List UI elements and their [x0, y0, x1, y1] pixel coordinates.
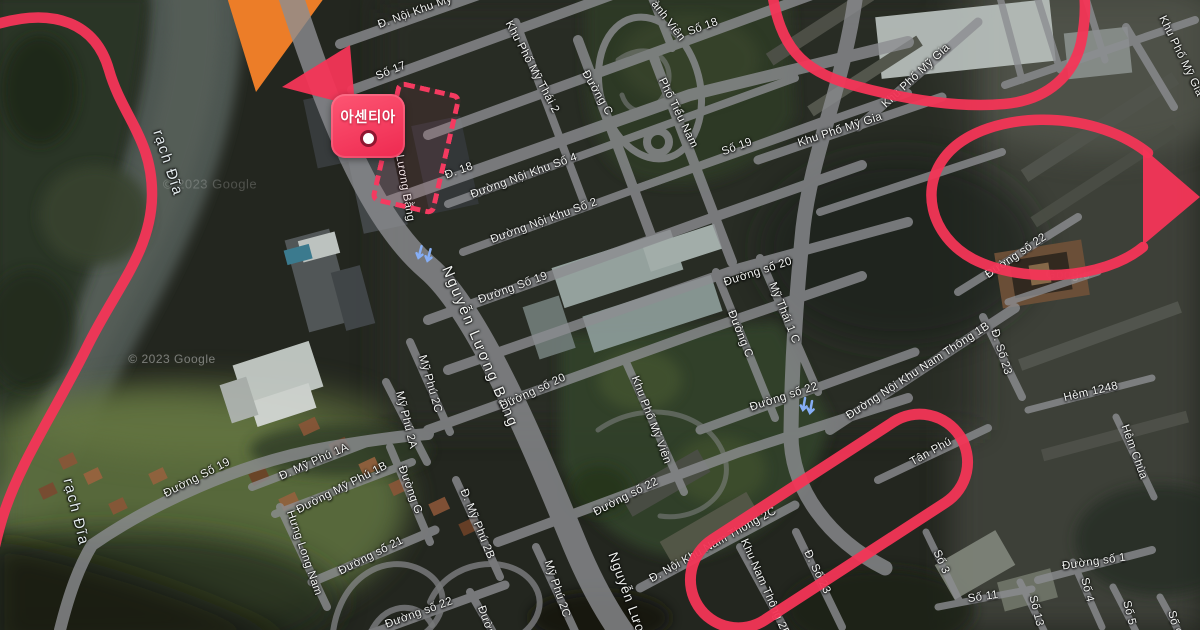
- map-attribution: © 2023 Google: [128, 352, 215, 366]
- place-marker[interactable]: 아센티아: [331, 94, 405, 158]
- place-marker-dot: [360, 130, 377, 147]
- map-canvas[interactable]: © 2023 Google © 2023 Google Google Đ. Nộ…: [0, 0, 1200, 630]
- place-marker-label: 아센티아: [340, 106, 395, 127]
- map-attribution: Google: [1046, 267, 1091, 282]
